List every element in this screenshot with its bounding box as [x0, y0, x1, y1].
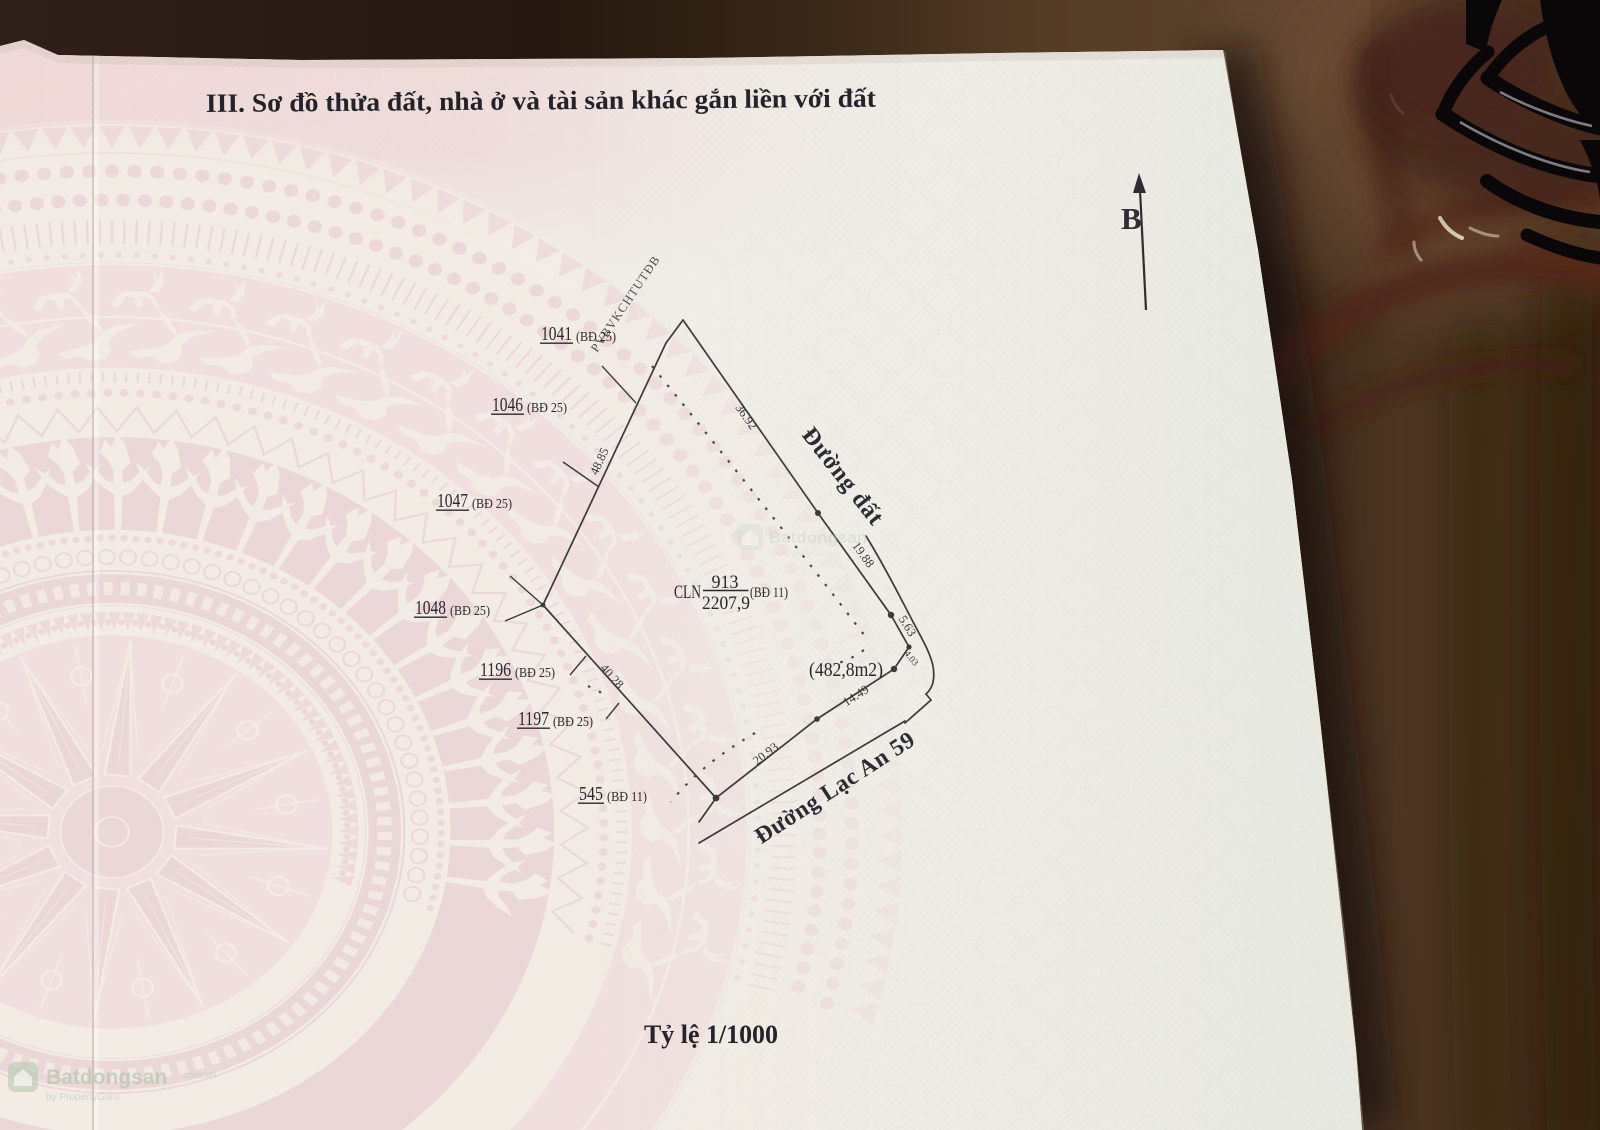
svg-text:(482,8m2): (482,8m2) [809, 659, 883, 681]
svg-text:(BĐ 25): (BĐ 25) [553, 715, 593, 730]
svg-text:(BĐ 11): (BĐ 11) [750, 585, 788, 601]
svg-text:1047: 1047 [437, 490, 468, 512]
svg-text:545: 545 [579, 783, 603, 805]
svg-text:Batdongsan: Batdongsan [46, 1066, 167, 1089]
svg-text:(BĐ 25): (BĐ 25) [515, 666, 555, 681]
svg-text:Batdongsan: Batdongsan [769, 528, 867, 547]
svg-text:(BĐ 25): (BĐ 25) [472, 497, 512, 512]
svg-text:CLN: CLN [674, 582, 701, 603]
svg-text:1197: 1197 [518, 708, 549, 730]
svg-text:(BĐ 25): (BĐ 25) [576, 330, 616, 345]
svg-text:(BĐ 11): (BĐ 11) [607, 790, 647, 805]
svg-text:(BĐ 25): (BĐ 25) [450, 604, 490, 619]
svg-text:1046: 1046 [492, 394, 523, 416]
svg-text:by PropertyGuru: by PropertyGuru [769, 548, 832, 558]
svg-text:III. Sơ đồ thửa đất, nhà ở và: III. Sơ đồ thửa đất, nhà ở và tài sản kh… [206, 83, 876, 118]
svg-text:1048: 1048 [415, 597, 446, 619]
svg-text:.com.vn: .com.vn [181, 1070, 216, 1081]
svg-text:2207,9: 2207,9 [702, 593, 750, 614]
svg-text:Tỷ lệ 1/1000: Tỷ lệ 1/1000 [644, 1019, 778, 1049]
svg-text:B: B [1121, 201, 1142, 236]
svg-text:1196: 1196 [480, 659, 511, 681]
svg-text:1041: 1041 [541, 323, 572, 345]
svg-text:by PropertyGuru: by PropertyGuru [46, 1092, 119, 1103]
svg-text:(BĐ 25): (BĐ 25) [527, 401, 567, 416]
